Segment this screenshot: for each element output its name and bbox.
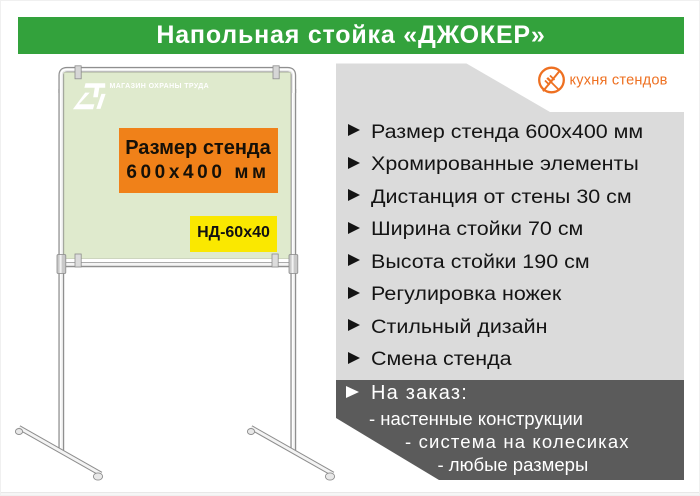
svg-text:МАГАЗИН ОХРАНЫ ТРУДА: МАГАЗИН ОХРАНЫ ТРУДА	[110, 83, 210, 90]
